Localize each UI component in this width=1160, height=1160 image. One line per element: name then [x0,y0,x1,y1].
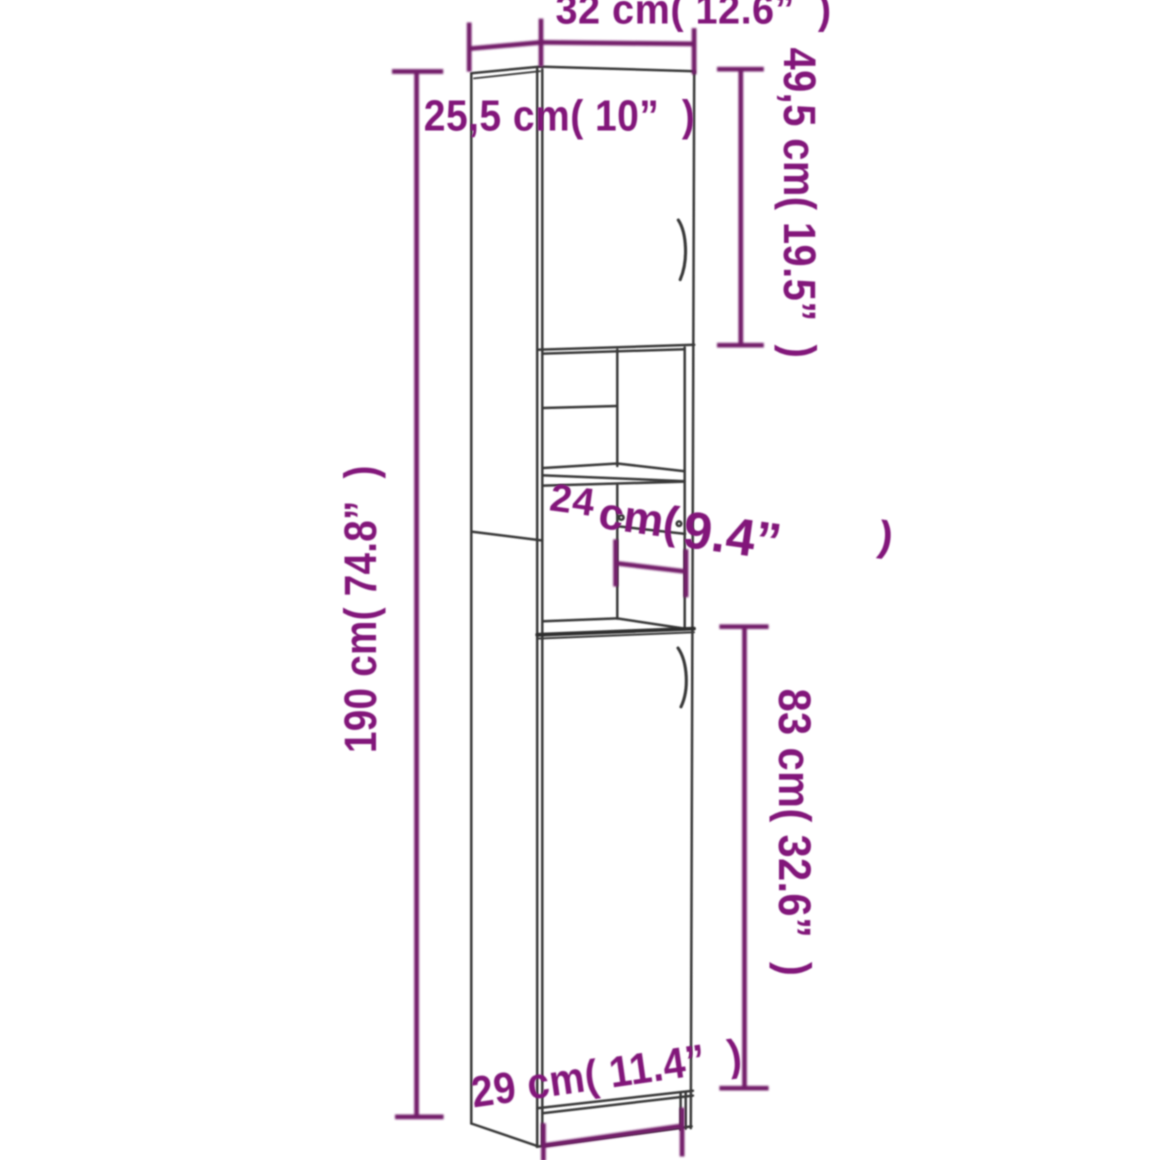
svg-text:190 cm( 74.8” ): 190 cm( 74.8” ) [335,465,385,753]
svg-text:83 cm( 32.6” ): 83 cm( 32.6” ) [769,689,819,977]
svg-text:24: 24 [547,476,598,525]
svg-text:32 cm( 12.6” ): 32 cm( 12.6” ) [556,0,832,33]
svg-text:25,5 cm( 10” ): 25,5 cm( 10” ) [424,90,695,140]
svg-text:49,5 cm( 19.5” ): 49,5 cm( 19.5” ) [773,48,823,359]
